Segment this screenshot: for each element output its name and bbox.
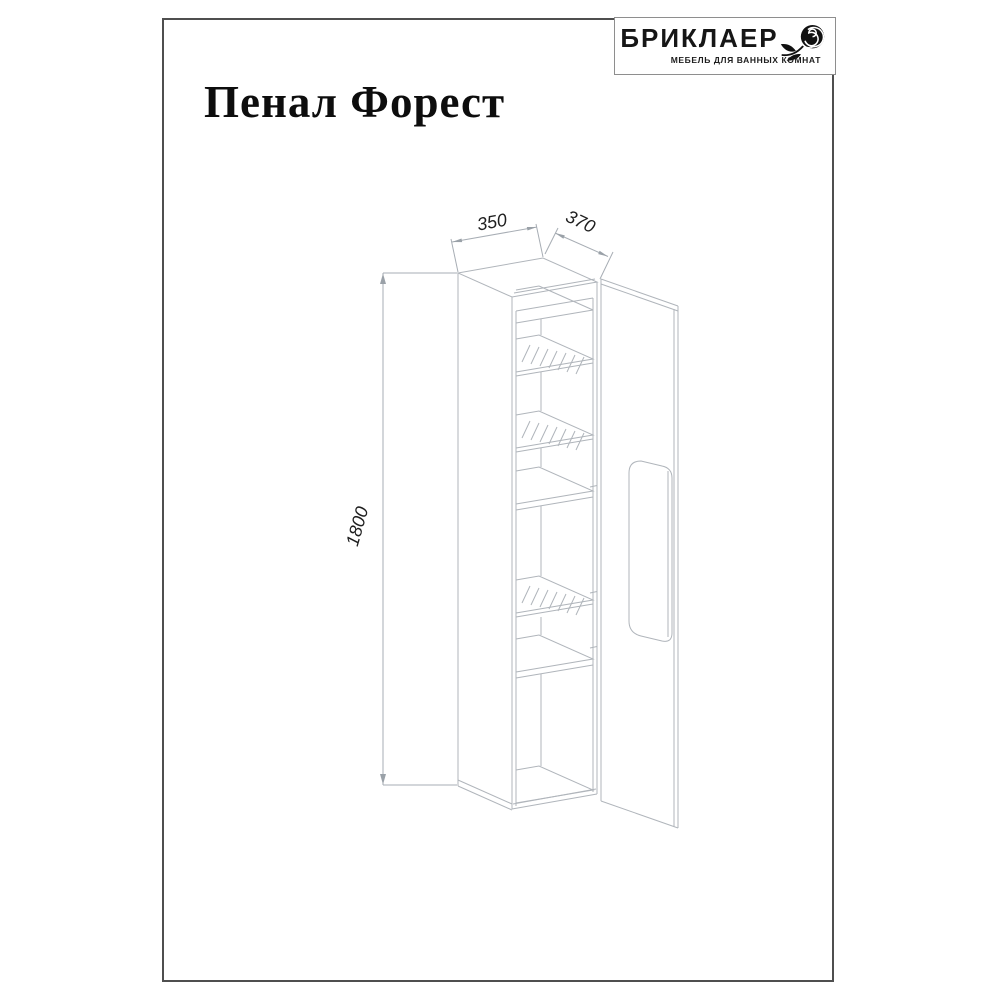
dimension-width: 350 <box>451 210 543 272</box>
solid-shelf-upper <box>516 467 593 510</box>
glass-shelf-top <box>516 335 593 376</box>
glass-shelf-lower <box>516 576 593 617</box>
cabinet-door-open <box>601 279 678 828</box>
dim-depth-label: 370 <box>563 206 599 237</box>
solid-shelf-lower <box>516 635 593 678</box>
spec-sheet: Пенал Форест БРИКЛАЕР МЕБЕЛЬ ДЛЯ ВАННЫХ … <box>0 0 1000 1000</box>
cabinet-carcass <box>458 258 597 810</box>
dimension-depth: 370 <box>545 206 613 279</box>
door-handle-recess <box>629 461 672 641</box>
glass-shelf-middle <box>516 411 593 452</box>
dim-width-label: 350 <box>475 210 508 235</box>
cabinet-technical-drawing: 1800 350 370 <box>0 0 1000 1000</box>
dimension-height: 1800 <box>342 273 457 785</box>
dim-height-label: 1800 <box>342 504 372 548</box>
